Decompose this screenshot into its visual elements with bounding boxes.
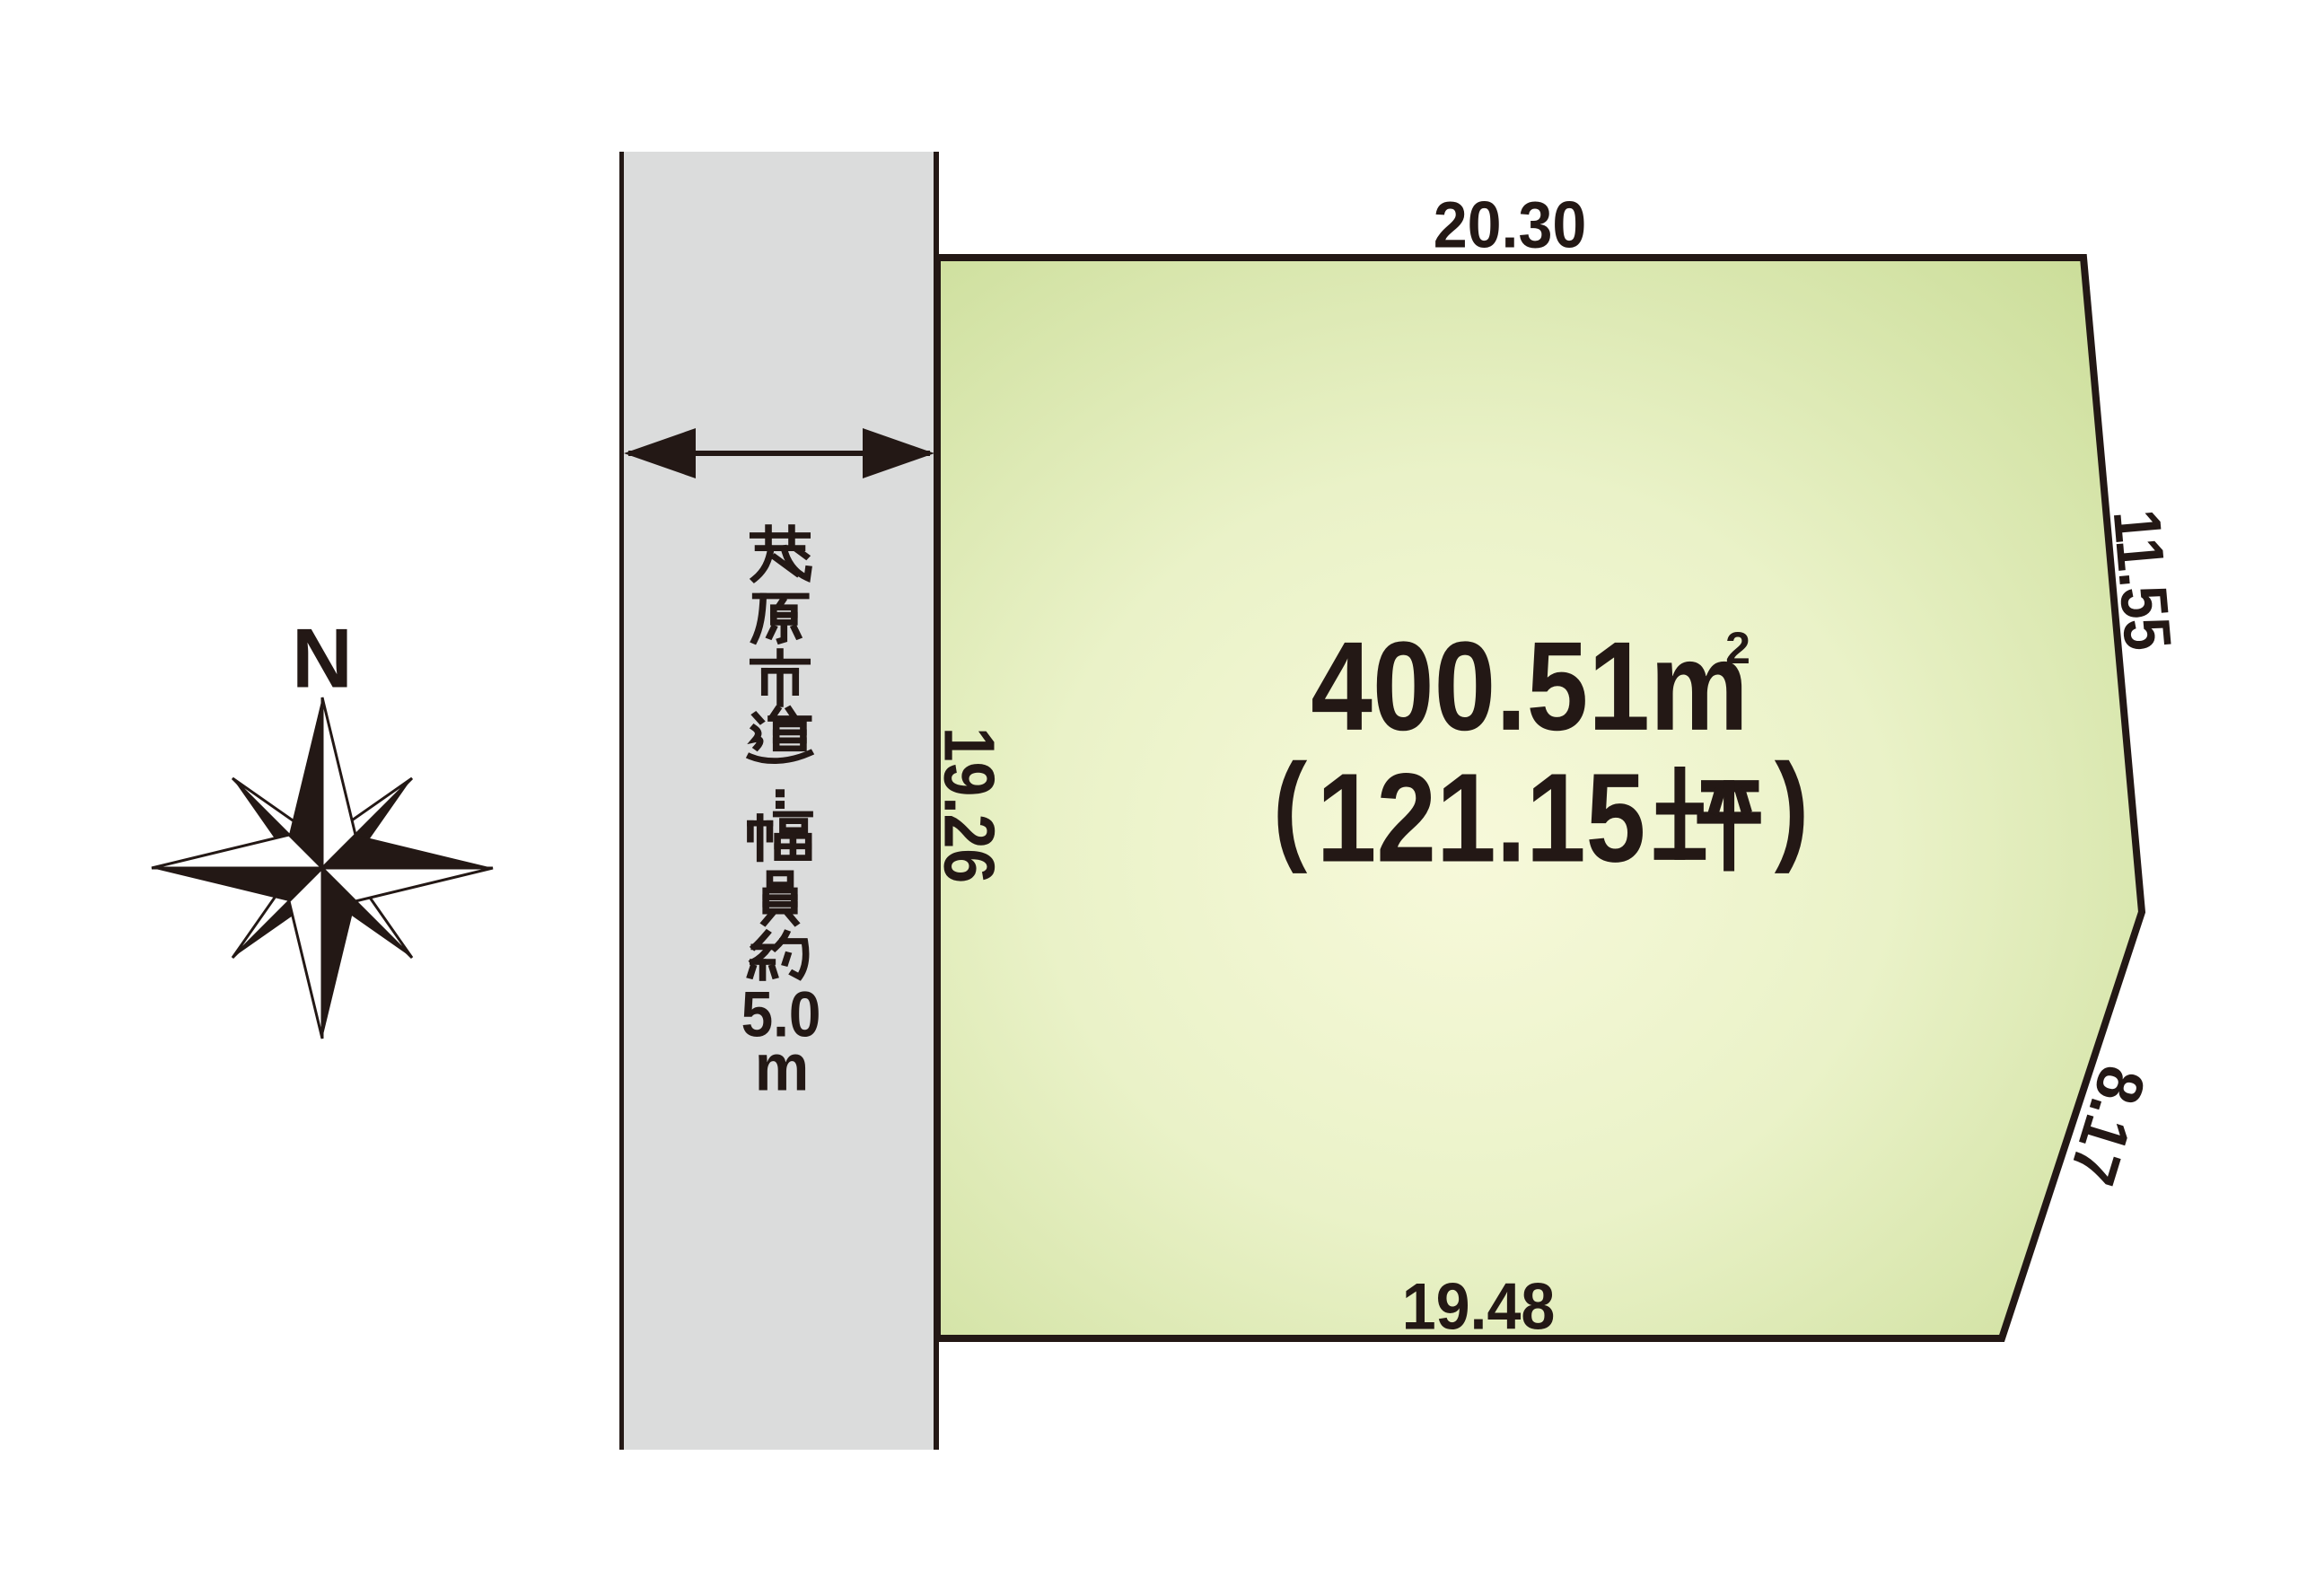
svg-text:11.55: 11.55: [2100, 506, 2187, 653]
svg-text:19.26: 19.26: [929, 727, 1010, 883]
svg-text:2: 2: [1725, 623, 1750, 673]
svg-text:19.48: 19.48: [1402, 1269, 1556, 1343]
svg-text:121.15: 121.15: [1317, 747, 1646, 888]
svg-text:N: N: [292, 611, 353, 706]
svg-text:20.30: 20.30: [1434, 188, 1587, 261]
svg-text:400.51m: 400.51m: [1311, 616, 1749, 757]
svg-text:m: m: [755, 1031, 810, 1105]
svg-text:(: (: [1273, 738, 1308, 874]
svg-text:): ): [1775, 738, 1810, 874]
